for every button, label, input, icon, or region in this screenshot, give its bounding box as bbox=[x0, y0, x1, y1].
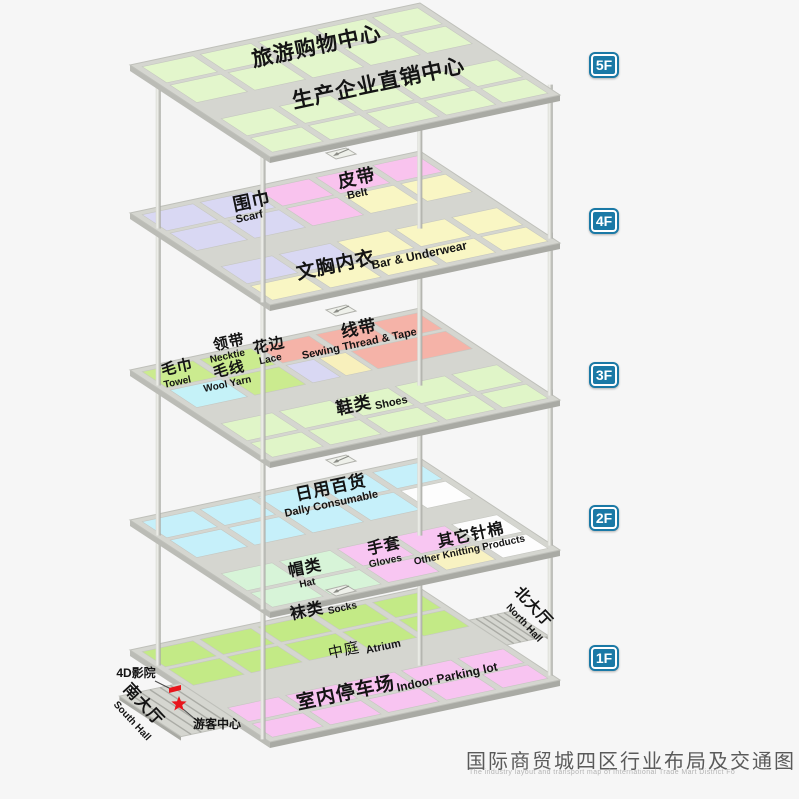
pillar bbox=[261, 148, 266, 302]
pillar bbox=[548, 390, 553, 546]
cinema-4d-label: 4D影院 bbox=[116, 665, 155, 680]
floor-badge-5f: 5F bbox=[589, 52, 619, 78]
floor-badge-3f-label: 3F bbox=[596, 367, 612, 383]
pillar bbox=[548, 233, 553, 396]
floor-map-stage: 旅游购物中心生产企业直销中心围巾Scarf皮带Belt文胸内衣Bar & Und… bbox=[0, 0, 799, 799]
floor-badge-2f: 2F bbox=[589, 505, 619, 531]
map-subtitle: The industry layout and transport map of… bbox=[469, 769, 735, 776]
notch-plate bbox=[326, 305, 356, 316]
floor-badge-5f-label: 5F bbox=[596, 57, 612, 73]
pillar bbox=[156, 75, 161, 229]
pillar bbox=[156, 530, 161, 666]
escalator-notch-icon bbox=[326, 455, 356, 466]
pillar bbox=[156, 223, 161, 386]
floor-badge-1f: 1F bbox=[589, 645, 619, 671]
floor-badge-4f: 4F bbox=[589, 208, 619, 234]
floor-badge-3f: 3F bbox=[589, 362, 619, 388]
pillar bbox=[261, 453, 266, 609]
pillar bbox=[548, 540, 553, 676]
building-diagram: 旅游购物中心生产企业直销中心围巾Scarf皮带Belt文胸内衣Bar & Und… bbox=[0, 0, 799, 799]
floor-badge-1f-label: 1F bbox=[596, 650, 612, 666]
visitor-center-label: 游客中心 bbox=[193, 716, 241, 731]
pillar bbox=[156, 380, 161, 536]
floor-badge-4f-label: 4F bbox=[596, 213, 612, 229]
pillar bbox=[261, 296, 266, 459]
pillar bbox=[548, 85, 553, 239]
escalator-notch-icon bbox=[326, 305, 356, 316]
notch-plate bbox=[326, 455, 356, 466]
pillar bbox=[261, 603, 266, 739]
floor-badge-2f-label: 2F bbox=[596, 510, 612, 526]
